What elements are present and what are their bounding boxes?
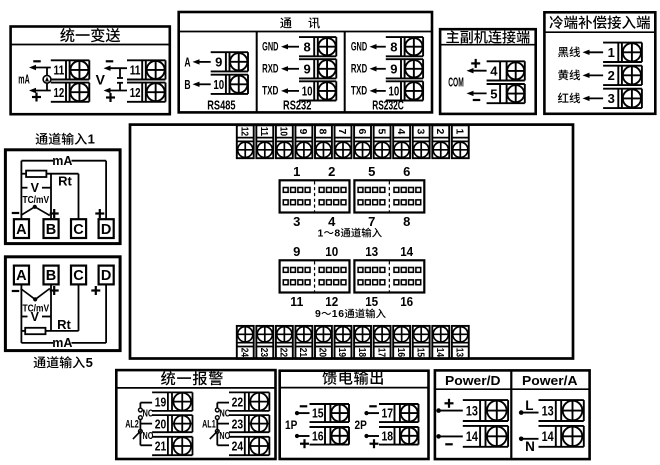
svg-text:RXD: RXD bbox=[351, 64, 367, 76]
svg-text:5: 5 bbox=[490, 86, 497, 101]
svg-text:11: 11 bbox=[290, 294, 303, 309]
svg-text:3: 3 bbox=[608, 91, 615, 106]
svg-text:24: 24 bbox=[232, 439, 244, 454]
svg-text:14: 14 bbox=[542, 429, 554, 444]
svg-text:13: 13 bbox=[466, 403, 478, 418]
svg-text:1: 1 bbox=[293, 164, 300, 179]
svg-text:10: 10 bbox=[278, 127, 290, 137]
svg-text:4: 4 bbox=[395, 128, 407, 134]
svg-text:TC/mV: TC/mV bbox=[22, 302, 49, 314]
svg-text:23: 23 bbox=[232, 416, 244, 431]
svg-text:RS232: RS232 bbox=[283, 99, 311, 113]
svg-text:9: 9 bbox=[293, 244, 300, 259]
svg-text:15: 15 bbox=[312, 406, 324, 421]
svg-text:1: 1 bbox=[88, 131, 95, 146]
svg-text:9: 9 bbox=[315, 309, 321, 320]
svg-text:19: 19 bbox=[155, 394, 167, 409]
svg-text:2: 2 bbox=[434, 128, 446, 134]
svg-text:mA: mA bbox=[18, 73, 29, 87]
svg-text:20: 20 bbox=[317, 348, 329, 358]
svg-text:8: 8 bbox=[317, 128, 329, 134]
svg-text:D: D bbox=[101, 222, 111, 238]
svg-text:AL1: AL1 bbox=[202, 418, 216, 430]
svg-text:mA: mA bbox=[52, 336, 72, 350]
svg-text:5: 5 bbox=[368, 164, 375, 179]
svg-text:12: 12 bbox=[238, 127, 250, 137]
svg-text:14: 14 bbox=[466, 429, 478, 444]
svg-text:22: 22 bbox=[232, 394, 244, 409]
svg-text:24: 24 bbox=[238, 348, 250, 358]
svg-text:TXD: TXD bbox=[262, 86, 278, 98]
svg-text:7: 7 bbox=[368, 214, 375, 229]
svg-text:14: 14 bbox=[400, 244, 414, 259]
svg-text:Rt: Rt bbox=[57, 317, 71, 332]
svg-text:15: 15 bbox=[414, 348, 426, 358]
svg-text:6: 6 bbox=[403, 164, 410, 179]
svg-text:9: 9 bbox=[215, 54, 222, 69]
svg-text:V: V bbox=[96, 72, 106, 88]
svg-text:17: 17 bbox=[375, 348, 387, 358]
svg-text:NC: NC bbox=[143, 407, 154, 419]
svg-text:NC: NC bbox=[219, 407, 230, 419]
svg-text:NO: NO bbox=[143, 430, 154, 442]
svg-text:13: 13 bbox=[454, 348, 466, 358]
svg-text:10: 10 bbox=[325, 244, 338, 259]
svg-text:8: 8 bbox=[334, 228, 340, 239]
svg-text:TC/mV: TC/mV bbox=[22, 194, 49, 206]
svg-text:10: 10 bbox=[302, 84, 313, 99]
svg-text:23: 23 bbox=[258, 348, 270, 358]
svg-text:4: 4 bbox=[490, 64, 498, 79]
svg-text:Rt: Rt bbox=[58, 173, 72, 188]
svg-text:B: B bbox=[184, 78, 190, 92]
svg-text:13: 13 bbox=[365, 244, 378, 259]
svg-text:11: 11 bbox=[130, 63, 141, 78]
svg-text:10: 10 bbox=[389, 84, 400, 99]
svg-text:8: 8 bbox=[403, 214, 410, 229]
svg-text:1: 1 bbox=[608, 45, 615, 60]
svg-text:GND: GND bbox=[262, 42, 278, 54]
svg-text:L: L bbox=[525, 398, 533, 413]
svg-text:1: 1 bbox=[332, 309, 338, 320]
svg-text:12: 12 bbox=[325, 294, 338, 309]
svg-text:3: 3 bbox=[293, 214, 300, 229]
svg-text:21: 21 bbox=[155, 439, 167, 454]
svg-text:C: C bbox=[73, 268, 84, 284]
svg-text:2: 2 bbox=[328, 164, 335, 179]
svg-text:9: 9 bbox=[303, 61, 310, 76]
svg-text:A: A bbox=[184, 55, 190, 69]
svg-text:15: 15 bbox=[365, 294, 378, 309]
svg-text:10: 10 bbox=[213, 77, 224, 92]
svg-text:mA: mA bbox=[52, 154, 72, 168]
svg-text:Power/A: Power/A bbox=[522, 373, 578, 388]
svg-text:Power/D: Power/D bbox=[445, 373, 501, 388]
svg-text:A: A bbox=[16, 222, 27, 238]
svg-text:RXD: RXD bbox=[262, 64, 278, 76]
svg-text:2: 2 bbox=[608, 68, 615, 83]
svg-text:6: 6 bbox=[356, 128, 368, 134]
svg-text:5: 5 bbox=[86, 355, 93, 370]
svg-text:8: 8 bbox=[390, 39, 397, 54]
svg-text:6: 6 bbox=[338, 309, 344, 320]
svg-text:11: 11 bbox=[258, 127, 270, 137]
svg-text:D: D bbox=[101, 268, 111, 284]
svg-text:12: 12 bbox=[54, 85, 65, 100]
svg-text:4: 4 bbox=[328, 214, 336, 229]
svg-text:NO: NO bbox=[219, 430, 230, 442]
svg-text:8: 8 bbox=[303, 39, 310, 54]
svg-text:B: B bbox=[46, 268, 56, 284]
svg-text:1P: 1P bbox=[285, 420, 298, 432]
svg-text:GND: GND bbox=[351, 42, 367, 54]
svg-text:B: B bbox=[46, 222, 56, 238]
svg-text:N: N bbox=[525, 439, 535, 454]
svg-text:22: 22 bbox=[278, 348, 290, 358]
svg-text:16: 16 bbox=[395, 348, 407, 358]
svg-text:RS485: RS485 bbox=[207, 99, 235, 113]
svg-text:5: 5 bbox=[375, 128, 387, 134]
svg-text:9: 9 bbox=[297, 128, 309, 134]
svg-text:21: 21 bbox=[297, 348, 309, 358]
svg-text:12: 12 bbox=[130, 85, 141, 100]
svg-text:COM: COM bbox=[448, 76, 464, 90]
svg-text:18: 18 bbox=[356, 348, 368, 358]
svg-text:13: 13 bbox=[542, 403, 554, 418]
svg-text:RS232C: RS232C bbox=[372, 99, 404, 113]
svg-text:2P: 2P bbox=[355, 420, 368, 432]
svg-text:19: 19 bbox=[336, 348, 348, 358]
svg-text:TXD: TXD bbox=[351, 86, 367, 98]
svg-text:7: 7 bbox=[336, 128, 348, 134]
svg-text:C: C bbox=[73, 222, 84, 238]
svg-text:1: 1 bbox=[454, 128, 466, 134]
svg-text:20: 20 bbox=[155, 416, 167, 431]
svg-text:16: 16 bbox=[400, 294, 413, 309]
svg-text:3: 3 bbox=[414, 128, 426, 134]
svg-text:9: 9 bbox=[390, 61, 397, 76]
svg-text:AL2: AL2 bbox=[125, 418, 139, 430]
svg-text:18: 18 bbox=[381, 428, 393, 443]
svg-text:1: 1 bbox=[317, 228, 323, 239]
svg-text:11: 11 bbox=[54, 63, 65, 78]
svg-text:16: 16 bbox=[312, 428, 324, 443]
svg-text:17: 17 bbox=[381, 406, 393, 421]
svg-text:A: A bbox=[16, 268, 27, 284]
svg-text:14: 14 bbox=[434, 348, 446, 358]
